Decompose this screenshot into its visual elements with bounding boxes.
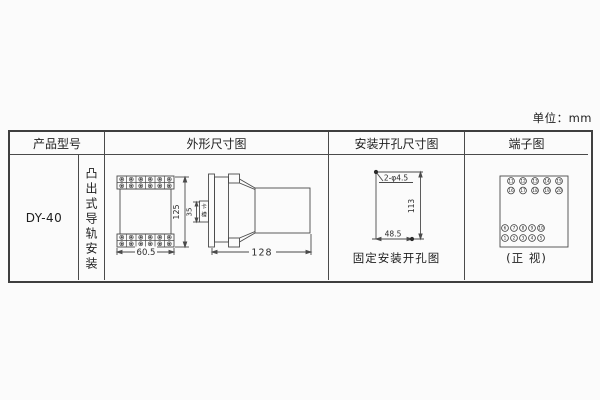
terminal-caption: (正 视) [465, 250, 588, 266]
terminal-screws [117, 176, 174, 247]
mounting-type: 凸出式导轨安装 [78, 155, 104, 280]
svg-text:20: 20 [556, 188, 562, 193]
product-model-cell: DY-40 凸出式导轨安装 [10, 155, 105, 280]
hole-size-label: 2-φ4.5 [384, 174, 409, 183]
width-dim-label: 60.5 [137, 248, 156, 258]
svg-text:10: 10 [538, 226, 544, 231]
side-bottom-step [229, 238, 240, 247]
header-terminal-diagram: 端子图 [465, 132, 588, 155]
vertical-dim-label: 113 [407, 199, 416, 214]
svg-text:8: 8 [522, 226, 525, 231]
slot-label: 卡槽 [201, 203, 207, 219]
svg-text:18: 18 [532, 188, 538, 193]
svg-text:16: 16 [508, 188, 514, 193]
svg-text:9: 9 [531, 226, 534, 231]
terminal-outline [500, 176, 568, 247]
svg-text:15: 15 [556, 179, 562, 184]
header-product-model: 产品型号 [10, 132, 105, 155]
horizontal-dim-label: 48.5 [385, 230, 402, 239]
svg-text:7: 7 [513, 226, 516, 231]
product-model: DY-40 [10, 155, 78, 280]
page: 单位：mm 产品型号 外形尺寸图 安装开孔尺寸图 端子图 DY-40 凸出式导轨… [0, 0, 600, 400]
height-dim-label: 125 [172, 204, 181, 219]
svg-text:11: 11 [508, 179, 514, 184]
svg-text:14: 14 [544, 179, 550, 184]
svg-text:卡: 卡 [201, 203, 207, 211]
holes-drawing-cell: 2-φ4.5 113 48.5 固定安装开孔图 [329, 155, 465, 280]
spec-table: 产品型号 外形尺寸图 安装开孔尺寸图 端子图 DY-40 凸出式导轨安装 [8, 130, 593, 283]
side-top-step [229, 174, 240, 183]
svg-text:6: 6 [504, 226, 507, 231]
terminal-drawing-cell: 11121314151617181920 67891012345 (正 视) [465, 155, 588, 280]
header-mounting-holes: 安装开孔尺寸图 [329, 132, 465, 155]
header-outline-dimensions: 外形尺寸图 [105, 132, 329, 155]
svg-text:5: 5 [540, 236, 543, 241]
svg-text:19: 19 [544, 188, 550, 193]
side-body [255, 188, 310, 233]
svg-text:3: 3 [522, 236, 525, 241]
front-body [120, 189, 171, 234]
outline-drawing-cell: 60.5 125 35 卡槽 128 [105, 155, 329, 280]
svg-text:17: 17 [520, 188, 526, 193]
side-inner [215, 177, 229, 242]
terminal-bottom-group: 67891012345 [502, 225, 545, 242]
svg-text:12: 12 [520, 179, 526, 184]
top-mounting-hole [374, 170, 378, 174]
svg-text:13: 13 [532, 179, 538, 184]
holes-caption: 固定安装开孔图 [329, 250, 464, 266]
svg-text:4: 4 [531, 236, 534, 241]
outline-drawing: 60.5 125 35 卡槽 128 [105, 155, 329, 280]
slot-dim-label: 35 [186, 208, 194, 217]
svg-text:2: 2 [513, 236, 516, 241]
side-backplate [209, 174, 215, 247]
unit-label: 单位：mm [533, 110, 592, 126]
terminal-top-group: 11121314151617181920 [508, 178, 563, 194]
svg-text:1: 1 [504, 236, 507, 241]
svg-text:槽: 槽 [201, 211, 207, 219]
depth-dim-label: 128 [251, 248, 272, 259]
bottom-mounting-hole [410, 237, 414, 241]
